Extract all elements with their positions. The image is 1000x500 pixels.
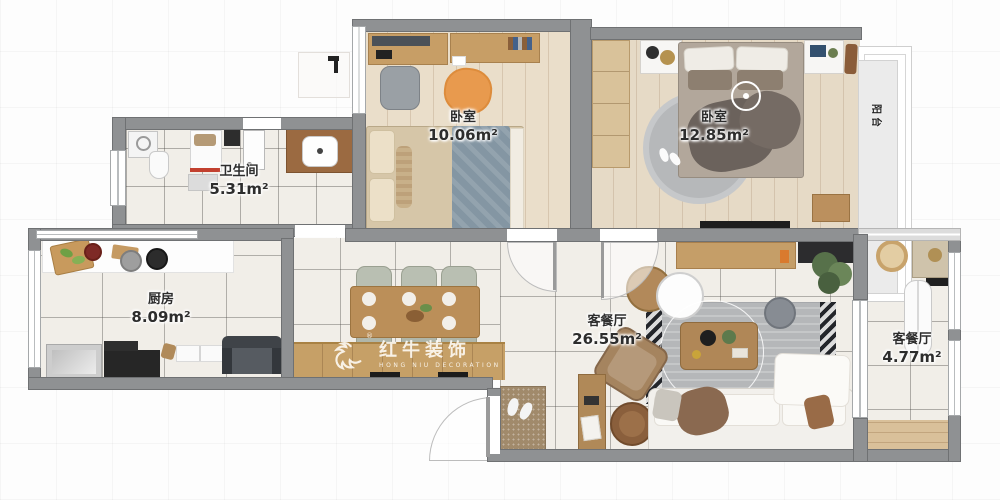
bathroom-cabinet: [224, 130, 240, 146]
laundry-basket: [194, 134, 216, 146]
entry-door-leaf: [486, 397, 490, 457]
pouf: [764, 297, 796, 329]
side-table-phone: [584, 396, 599, 405]
bathroom-door-opening: [243, 118, 281, 129]
wall-side-left-top: [853, 234, 868, 300]
floorplan-canvas: 卧室 10.06m² 卧室 12.85m² 卫生间 5.31m² 厨房 8.09…: [0, 0, 1000, 500]
wall-living-bottom: [487, 449, 961, 462]
place-setting-2: [402, 292, 416, 306]
brand-name: 红牛装饰: [379, 342, 501, 360]
console-book: [780, 250, 789, 263]
ottoman-top: [619, 411, 645, 437]
black-bowl: [700, 330, 716, 346]
nightstand-book: [810, 45, 826, 57]
bed1-pillow-1: [369, 130, 395, 174]
serving-bowl: [406, 310, 424, 322]
wall-bedroom-divider: [570, 19, 592, 235]
toilet: [149, 151, 169, 179]
room-label-bedroom1: 卧室 10.06m²: [403, 106, 523, 144]
wall-scarf: [844, 44, 858, 75]
sofa-pillow-gray: [652, 388, 683, 422]
coffee-table: [680, 322, 758, 370]
wall-kitchen-dining-divider: [281, 238, 294, 378]
room-area: 12.85m²: [679, 126, 749, 144]
brand-watermark: ® 红牛装饰 HONG NIU DECORATION: [332, 332, 512, 378]
bed2-pillow-white-1: [683, 46, 734, 73]
brand-text-block: 红牛装饰 HONG NIU DECORATION: [379, 342, 501, 369]
dresser: [812, 194, 850, 222]
bed2-pillow-brown-1: [688, 70, 732, 90]
room-label-living: 客餐厅 26.55m²: [547, 310, 667, 348]
room-name: 客餐厅: [587, 310, 626, 329]
entry-door-arc: [429, 397, 493, 461]
room-area: 5.31m²: [209, 180, 268, 198]
bedroom2-door-leaf: [601, 242, 604, 298]
place-setting-4: [362, 316, 376, 330]
room-label-bedroom2: 卧室 12.85m²: [654, 106, 774, 144]
room-label-balcony: 阳台: [871, 89, 885, 145]
stove-counter: [104, 350, 160, 378]
stove-step: [104, 341, 138, 351]
side-wood-band: [868, 420, 950, 452]
bed2-pillow-white-2: [736, 46, 789, 72]
wall-bedroom2-top: [590, 27, 862, 40]
table-greens: [420, 304, 432, 312]
kitchen-left-window: [28, 250, 41, 368]
paper-sheet: [452, 56, 466, 66]
table-plant: [722, 330, 736, 344]
side-right-window-1: [948, 252, 961, 330]
wall-side-top-glass: [858, 228, 961, 241]
room-name: 客餐厅: [892, 328, 931, 347]
nook-chair-seat: [228, 348, 276, 374]
laptop: [376, 50, 392, 59]
room-area: 4.77m²: [882, 348, 941, 366]
room-center-dot: [743, 93, 749, 99]
books: [508, 37, 532, 50]
rattan-decor: [876, 240, 908, 272]
wardrobe: [592, 40, 630, 168]
room-name: 厨房: [148, 288, 174, 307]
nightstand-hat: [660, 50, 675, 65]
bull-logo-icon: [332, 340, 364, 370]
kitchen-top-window: [36, 230, 198, 239]
room-label-side: 客餐厅 4.77m²: [852, 328, 972, 366]
bedroom1-window: [352, 26, 366, 114]
bed1-pillow-2: [369, 178, 395, 222]
nightstand-plant: [828, 48, 838, 58]
red-pot: [84, 243, 102, 261]
bed1-bolster: [396, 146, 412, 208]
sink-faucet: [317, 148, 323, 154]
registered-mark: ®: [366, 332, 373, 340]
wall-kitchen-bottom: [28, 377, 493, 390]
side-cabinet-knob: [928, 248, 942, 262]
gray-pot: [120, 250, 142, 272]
room-name: 卫生间: [219, 160, 258, 179]
room-area: 10.06m²: [428, 126, 498, 144]
room-name: 卧室: [701, 106, 727, 125]
brand-subtitle: HONG NIU DECORATION: [379, 363, 501, 369]
wall-bathroom-top: [112, 117, 364, 130]
kitchen-drawers: [176, 345, 224, 362]
room-area: 26.55m²: [572, 330, 642, 348]
wall-bedroom1-top: [352, 19, 592, 32]
office-chair: [380, 66, 420, 110]
bathroom-window: [110, 150, 126, 206]
room-label-kitchen: 厨房 8.09m²: [101, 288, 221, 326]
bedroom1-door-opening: [507, 229, 557, 241]
room-area: 8.09m²: [131, 308, 190, 326]
place-setting-5: [442, 316, 456, 330]
place-setting-1: [362, 292, 376, 306]
ghost-fixture-outline: [298, 52, 350, 98]
hall-opening: [295, 225, 345, 237]
fridge-inner: [52, 350, 96, 374]
table-tray: [732, 348, 748, 358]
desk-shelf: [372, 36, 430, 46]
black-pot: [146, 248, 168, 270]
ghost-fixture-flag: [328, 56, 339, 61]
nightstand-tray: [646, 46, 659, 59]
nook-chair-arm-left: [222, 348, 232, 374]
place-setting-3: [442, 292, 456, 306]
bedroom1-door-leaf: [553, 242, 556, 290]
side-table-book: [580, 415, 601, 441]
washing-machine-door: [136, 136, 151, 151]
tv-console: [676, 242, 796, 269]
bedroom2-door-opening: [600, 229, 657, 241]
room-label-bathroom: 卫生间 5.31m²: [179, 160, 299, 198]
plant-leaf-3: [818, 272, 840, 294]
room-name: 卧室: [450, 106, 476, 125]
wall-side-left-bottom: [853, 418, 868, 462]
fruit-bowl: [692, 350, 701, 359]
